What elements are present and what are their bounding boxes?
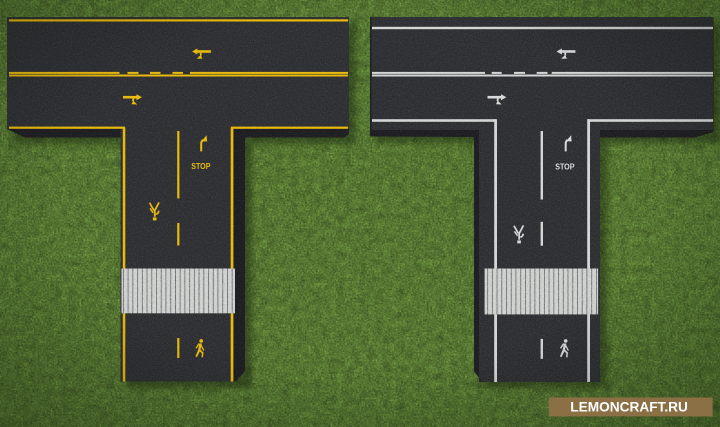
svg-text:LEMONCRAFT.RU: LEMONCRAFT.RU <box>570 400 688 416</box>
